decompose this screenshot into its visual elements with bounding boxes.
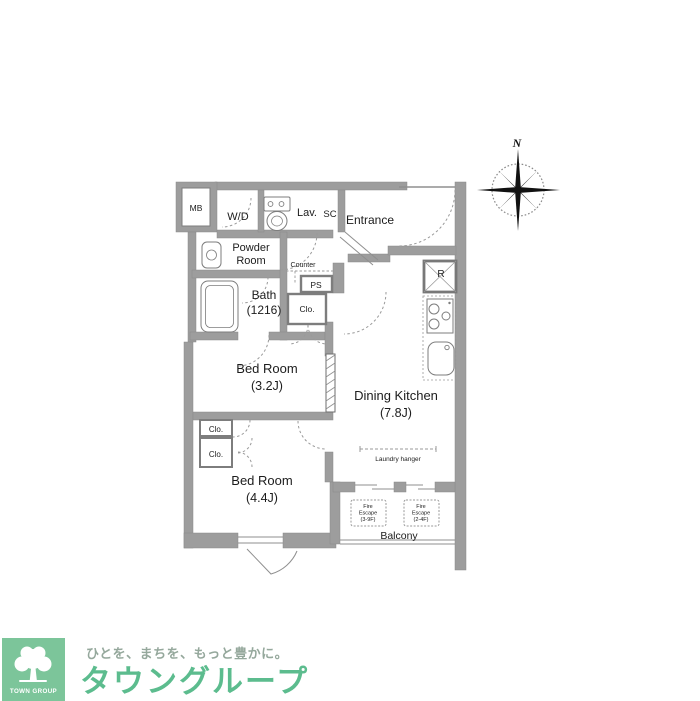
- floorplan-image: N MB W/D Lav. SC Entrance Powder Room Co…: [0, 0, 700, 701]
- compass-icon: N: [477, 136, 560, 231]
- logo-square-text: TOWN GROUP: [10, 688, 57, 695]
- label-balcony: Balcony: [380, 530, 418, 542]
- laundry-hanger-lines: [360, 446, 436, 452]
- label-bedroom1-2: (3.2J): [251, 379, 283, 393]
- window-swing: [247, 549, 297, 574]
- label-bedroom2-2: (4.4J): [246, 491, 278, 505]
- tree-icon: TOWN GROUP: [2, 638, 65, 701]
- label-counter: Counter: [291, 262, 317, 269]
- label-bath-2: (1216): [247, 303, 282, 317]
- label-sc: SC: [323, 209, 336, 220]
- label-fire-escape-right-2: Escape: [412, 511, 430, 517]
- label-bedroom1-1: Bed Room: [236, 361, 297, 376]
- label-refrigerator: R: [437, 269, 444, 280]
- label-closet-upper: Clo.: [209, 425, 223, 434]
- label-closet-lower: Clo.: [209, 450, 223, 459]
- sink-icon: [428, 342, 454, 375]
- closet-upper-door-arc: [233, 420, 250, 437]
- label-closet-bath: Clo.: [299, 304, 314, 314]
- label-wd: W/D: [227, 211, 248, 223]
- label-entrance: Entrance: [346, 213, 394, 227]
- closet-lower-door-arcs: [237, 438, 252, 467]
- entrance-door-arc: [399, 190, 455, 246]
- label-powder-2: Room: [236, 255, 265, 267]
- hall-dk-door-arc: [344, 292, 386, 334]
- label-bedroom2-1: Bed Room: [231, 473, 292, 488]
- label-fire-escape-right-3: (2-4F): [414, 517, 429, 523]
- stove-icon: [427, 299, 453, 333]
- sliding-door: [326, 354, 335, 412]
- label-dining-2: (7.8J): [380, 406, 412, 420]
- label-lav: Lav.: [297, 207, 317, 219]
- bathtub-icon: [201, 281, 238, 332]
- washbasin-icon: [202, 242, 221, 268]
- label-fire-escape-left-3: (3-9F): [361, 517, 376, 523]
- label-fire-escape-left-2: Escape: [359, 511, 377, 517]
- label-powder-1: Powder: [232, 242, 270, 254]
- compass-north-label: N: [512, 136, 523, 150]
- company-name: タウングループ: [80, 656, 309, 701]
- bedroom2-door-arc: [298, 421, 326, 449]
- town-group-logo: TOWN GROUP: [2, 638, 65, 701]
- label-ps: PS: [310, 280, 322, 290]
- toilet-icon: [264, 197, 290, 231]
- label-mb: MB: [190, 203, 203, 213]
- label-laundry-hanger: Laundry hanger: [375, 456, 421, 463]
- label-fire-escape-left-1: Fire: [363, 504, 372, 510]
- label-fire-escape-right-1: Fire: [416, 504, 425, 510]
- footer: TOWN GROUP ひとを、まちを、もっと豊かに。 タウングループ: [0, 636, 700, 701]
- label-dining-1: Dining Kitchen: [354, 388, 438, 403]
- label-bath-1: Bath: [252, 288, 277, 302]
